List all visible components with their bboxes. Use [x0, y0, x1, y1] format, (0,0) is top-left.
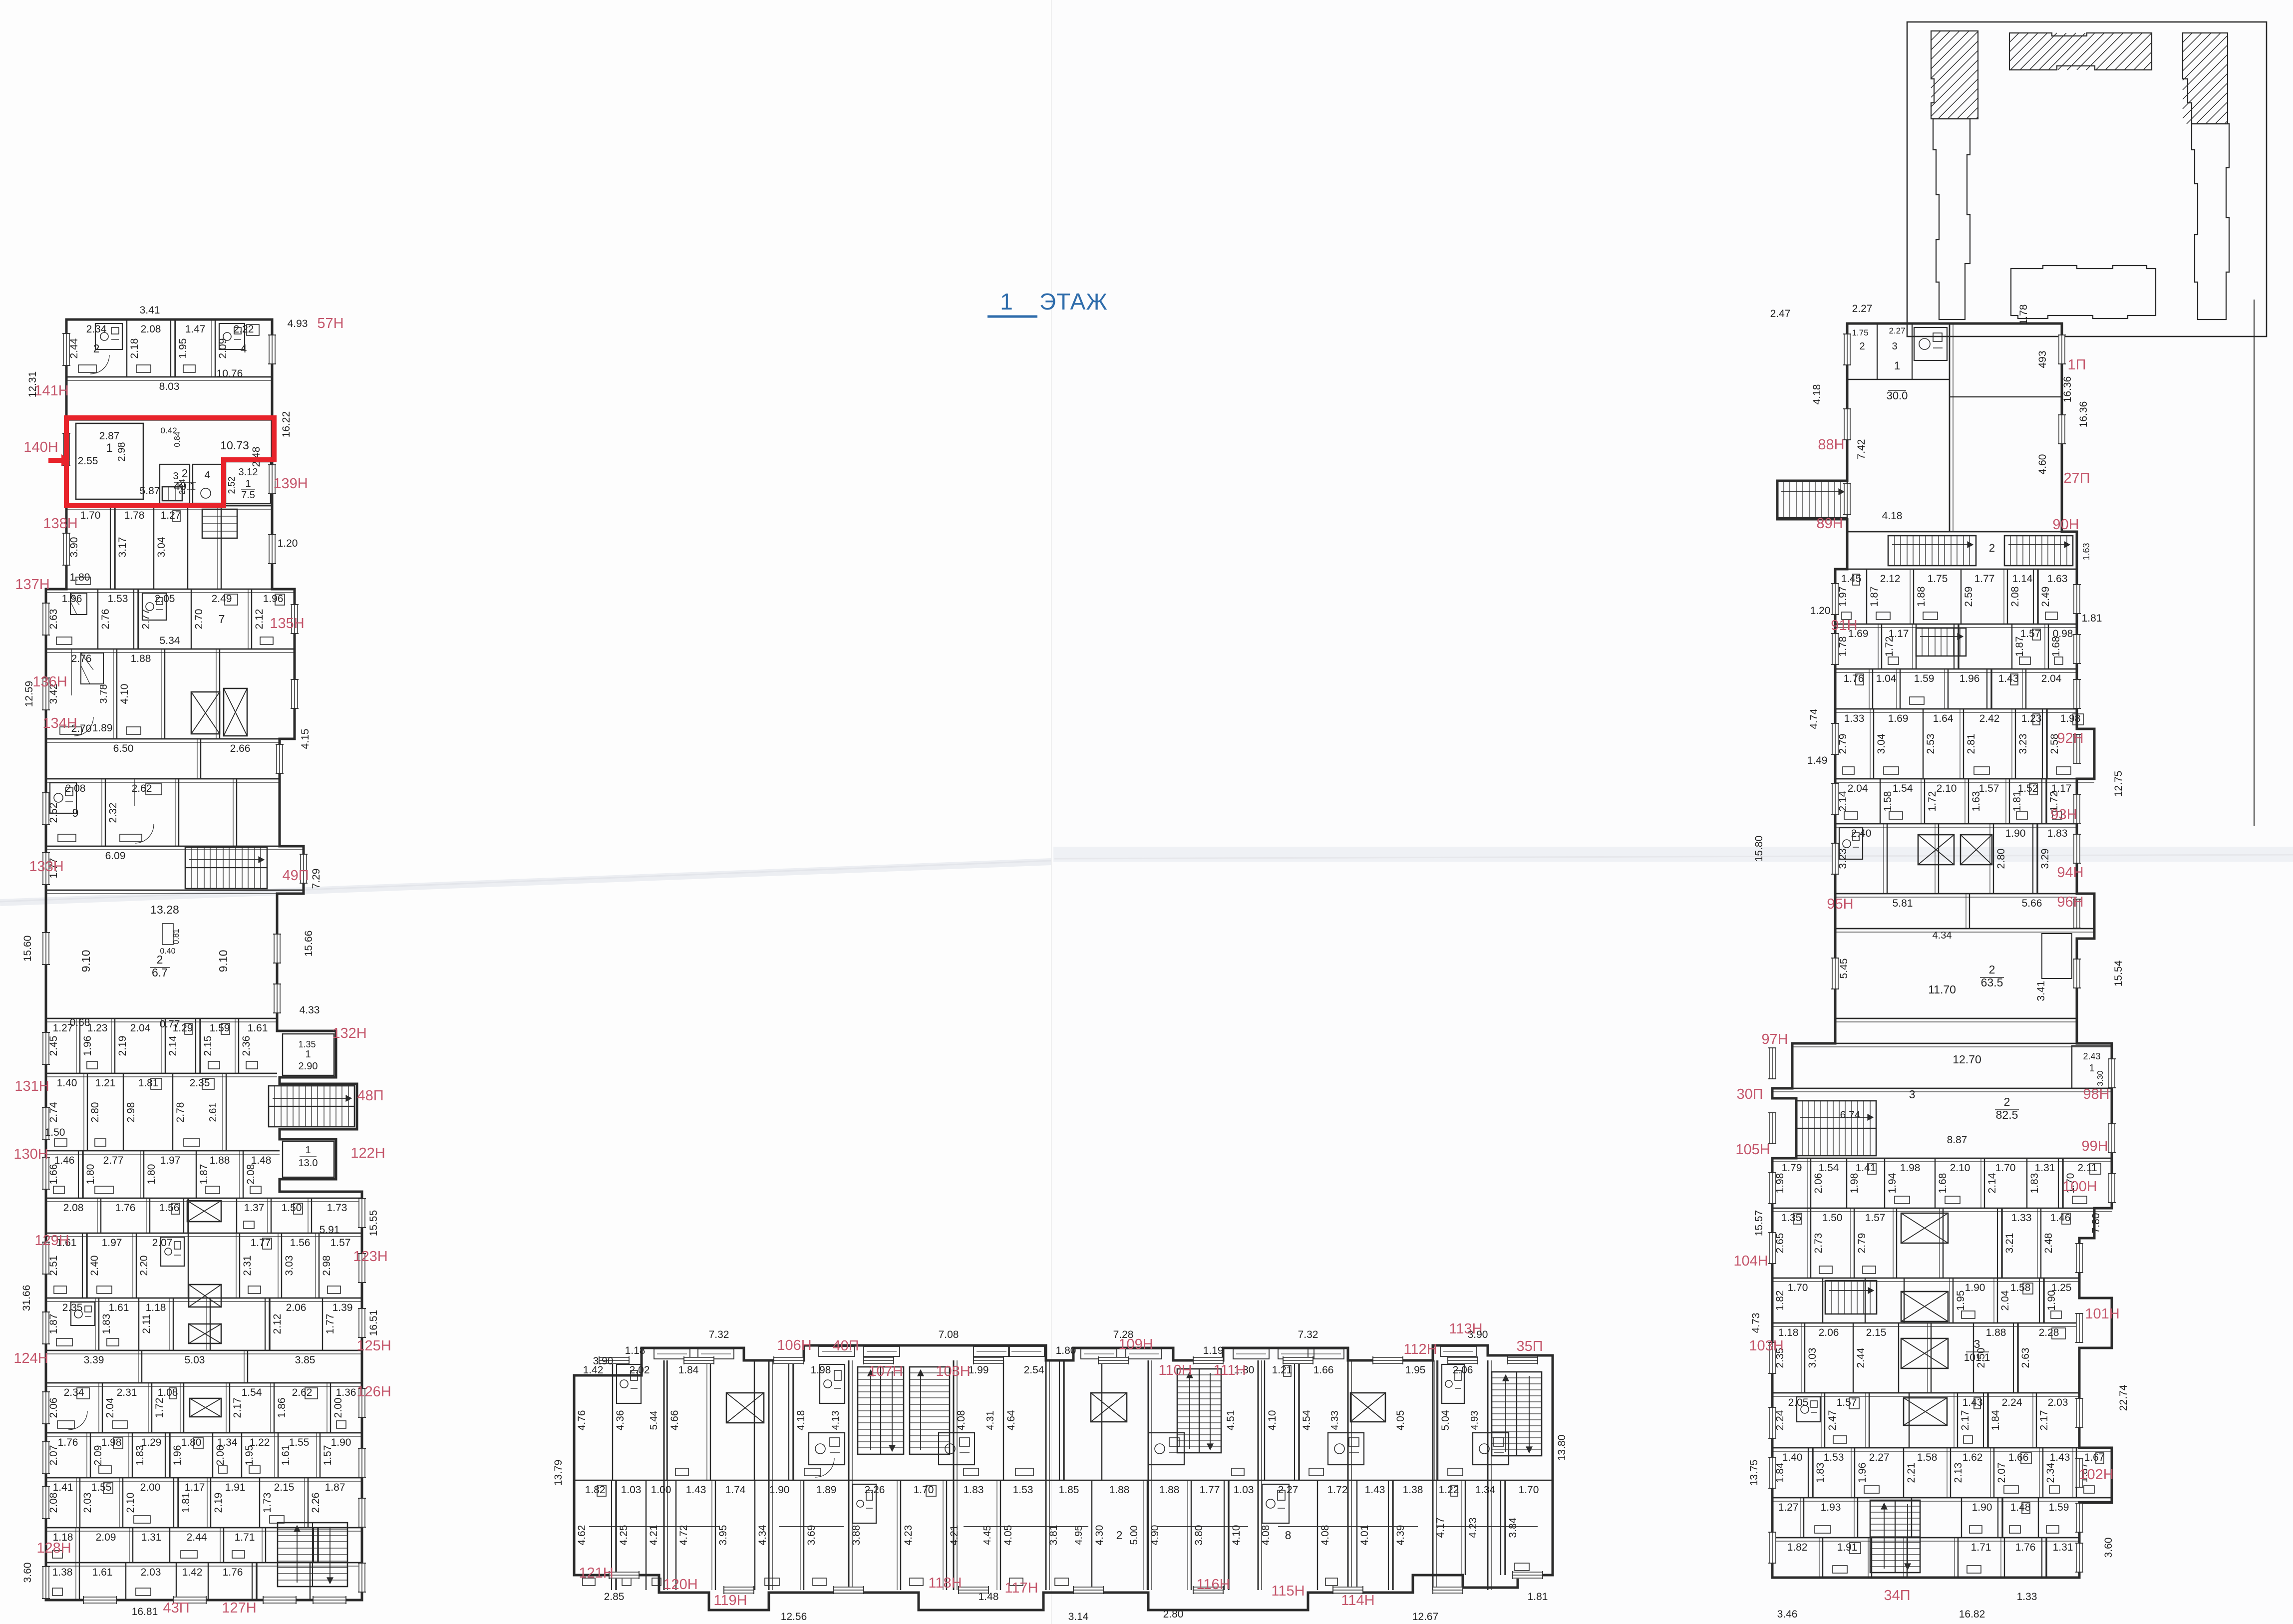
svg-text:1.98: 1.98 [101, 1437, 122, 1448]
svg-text:1.56: 1.56 [290, 1237, 311, 1249]
svg-text:1.86: 1.86 [276, 1398, 288, 1418]
svg-text:92Н: 92Н [2057, 730, 2083, 746]
svg-text:3.90: 3.90 [1468, 1329, 1488, 1340]
svg-text:2.44: 2.44 [1855, 1347, 1867, 1368]
svg-text:3: 3 [1974, 1337, 1980, 1350]
svg-text:1.20: 1.20 [278, 538, 298, 549]
svg-text:2: 2 [1859, 341, 1865, 352]
svg-text:1.81: 1.81 [1528, 1591, 1548, 1603]
svg-text:1.64: 1.64 [1933, 713, 1954, 724]
svg-text:101Н: 101Н [2085, 1306, 2119, 1322]
svg-text:2.76: 2.76 [100, 609, 111, 630]
svg-text:4.23: 4.23 [1467, 1518, 1479, 1538]
svg-text:137Н: 137Н [15, 577, 49, 593]
svg-text:27П: 27П [2063, 470, 2090, 486]
svg-text:2.06: 2.06 [215, 1445, 226, 1466]
svg-text:94Н: 94Н [2057, 865, 2083, 881]
svg-text:1.56: 1.56 [159, 1202, 180, 1214]
svg-text:48П: 48П [357, 1088, 383, 1104]
svg-text:4.34: 4.34 [1933, 930, 1952, 941]
svg-text:2.77: 2.77 [103, 1155, 124, 1166]
svg-text:2.48: 2.48 [2043, 1233, 2054, 1254]
svg-text:1.74: 1.74 [725, 1484, 746, 1496]
svg-text:1.70: 1.70 [1788, 1282, 1808, 1294]
svg-text:3.23: 3.23 [2017, 734, 2029, 754]
svg-text:2.73: 2.73 [1813, 1233, 1824, 1254]
svg-text:9.10: 9.10 [217, 950, 230, 973]
svg-text:1.82: 1.82 [1787, 1542, 1808, 1553]
svg-text:15.57: 15.57 [1753, 1210, 1765, 1237]
svg-text:2.65: 2.65 [1774, 1233, 1786, 1254]
svg-text:3.90: 3.90 [593, 1355, 614, 1367]
svg-text:2.35: 2.35 [62, 1302, 83, 1313]
svg-text:3.29: 3.29 [2039, 849, 2051, 869]
svg-text:1.35: 1.35 [1781, 1212, 1802, 1224]
svg-text:7: 7 [219, 613, 225, 626]
svg-text:4.10: 4.10 [1231, 1525, 1242, 1546]
svg-text:1.88: 1.88 [1916, 587, 1927, 607]
svg-text:1.50: 1.50 [1822, 1212, 1843, 1224]
svg-text:107Н: 107Н [868, 1363, 903, 1379]
svg-text:122Н: 122Н [350, 1145, 385, 1161]
svg-text:1.96: 1.96 [263, 593, 284, 605]
svg-text:3.88: 3.88 [851, 1525, 862, 1546]
svg-text:2.98: 2.98 [116, 442, 127, 462]
svg-text:4.73: 4.73 [1750, 1313, 1762, 1333]
svg-text:35П: 35П [1516, 1338, 1543, 1354]
svg-text:12.67: 12.67 [1412, 1611, 1439, 1623]
svg-text:1.31: 1.31 [2035, 1162, 2055, 1174]
svg-text:1.23: 1.23 [2021, 713, 2042, 724]
svg-text:116Н: 116Н [1196, 1577, 1230, 1593]
svg-text:1.63: 1.63 [2047, 573, 2068, 585]
svg-text:112Н: 112Н [1403, 1341, 1437, 1357]
svg-text:7.29: 7.29 [311, 869, 322, 889]
svg-text:12.70: 12.70 [1953, 1053, 1981, 1066]
svg-text:1.85: 1.85 [1059, 1484, 1079, 1496]
svg-text:2.00: 2.00 [332, 1398, 344, 1418]
svg-text:1.59: 1.59 [210, 1022, 230, 1034]
svg-text:43П: 43П [163, 1600, 189, 1616]
svg-text:1.76: 1.76 [2015, 1542, 2036, 1553]
svg-text:5.34: 5.34 [160, 635, 180, 647]
svg-text:3.41: 3.41 [2035, 981, 2047, 1001]
svg-text:2.47: 2.47 [1770, 308, 1791, 320]
svg-text:1.61: 1.61 [248, 1022, 268, 1034]
svg-text:15.54: 15.54 [2113, 960, 2124, 986]
svg-text:30П: 30П [1736, 1086, 1763, 1102]
svg-text:2.07: 2.07 [48, 1445, 59, 1466]
svg-text:1.88: 1.88 [210, 1155, 230, 1166]
svg-text:115Н: 115Н [1271, 1583, 1305, 1599]
svg-text:2.62: 2.62 [132, 783, 152, 794]
svg-text:89Н: 89Н [1816, 516, 1843, 532]
svg-text:1.31: 1.31 [141, 1532, 162, 1543]
svg-text:4.05: 4.05 [1002, 1525, 1014, 1546]
svg-text:2.31: 2.31 [242, 1256, 253, 1276]
svg-text:12.31: 12.31 [27, 371, 38, 398]
svg-text:4.76: 4.76 [576, 1410, 588, 1431]
svg-text:100Н: 100Н [2062, 1179, 2097, 1195]
svg-text:13.28: 13.28 [150, 903, 179, 916]
svg-text:1.03: 1.03 [1234, 1484, 1254, 1496]
svg-text:119Н: 119Н [713, 1593, 747, 1609]
svg-text:0.68: 0.68 [70, 1017, 90, 1028]
svg-text:1.33: 1.33 [1844, 713, 1865, 724]
svg-text:1.18: 1.18 [625, 1345, 646, 1356]
svg-text:3.12: 3.12 [239, 467, 258, 478]
svg-text:138Н: 138Н [43, 516, 77, 532]
svg-text:120Н: 120Н [663, 1577, 697, 1593]
svg-text:3.14: 3.14 [1068, 1611, 1089, 1623]
svg-text:3.46: 3.46 [1777, 1609, 1798, 1620]
svg-text:96Н: 96Н [2057, 894, 2083, 910]
svg-text:2.10: 2.10 [1937, 783, 1957, 794]
svg-text:1.81: 1.81 [2082, 613, 2102, 624]
svg-text:1.97: 1.97 [160, 1155, 181, 1166]
svg-text:2.98: 2.98 [321, 1256, 332, 1276]
svg-text:123Н: 123Н [353, 1249, 387, 1265]
svg-text:2.90: 2.90 [299, 1061, 318, 1072]
svg-text:3.85: 3.85 [295, 1354, 316, 1366]
svg-text:1.75: 1.75 [1852, 328, 1868, 337]
svg-text:95Н: 95Н [1827, 896, 1853, 912]
svg-text:1.54: 1.54 [1893, 783, 1913, 794]
svg-text:1.82: 1.82 [1774, 1291, 1786, 1311]
svg-text:1.87: 1.87 [2014, 637, 2025, 657]
svg-text:4.21: 4.21 [648, 1525, 659, 1546]
svg-text:1.96: 1.96 [82, 1036, 93, 1056]
svg-text:2.06: 2.06 [48, 1398, 59, 1418]
svg-text:4: 4 [204, 470, 210, 481]
svg-text:3: 3 [173, 471, 178, 482]
svg-text:2.27: 2.27 [1852, 303, 1873, 315]
svg-text:2.79: 2.79 [1856, 1233, 1868, 1254]
svg-text:132Н: 132Н [332, 1025, 366, 1041]
svg-text:4.18: 4.18 [1811, 384, 1823, 405]
svg-text:2.80: 2.80 [89, 1102, 101, 1123]
svg-text:1.83: 1.83 [101, 1314, 112, 1334]
svg-text:2.61: 2.61 [208, 1103, 219, 1122]
svg-text:2.15: 2.15 [202, 1036, 214, 1056]
svg-text:2.05: 2.05 [155, 593, 175, 605]
svg-text:1.38: 1.38 [52, 1567, 73, 1578]
svg-text:2.48: 2.48 [251, 447, 262, 467]
svg-text:1.72: 1.72 [1327, 1484, 1348, 1496]
svg-text:16.82: 16.82 [1959, 1609, 1985, 1620]
svg-text:2.79: 2.79 [1837, 734, 1849, 754]
svg-text:2.66: 2.66 [230, 743, 251, 754]
svg-text:2.24: 2.24 [178, 479, 187, 494]
svg-text:1.71: 1.71 [1971, 1542, 1991, 1553]
svg-text:1.87: 1.87 [198, 1164, 210, 1185]
svg-text:4.17: 4.17 [1435, 1518, 1446, 1538]
svg-text:1.96: 1.96 [1857, 1463, 1868, 1483]
svg-text:2.27: 2.27 [1889, 326, 1905, 335]
svg-text:1.31: 1.31 [2053, 1542, 2073, 1553]
svg-text:4.30: 4.30 [1094, 1525, 1105, 1546]
svg-text:49П: 49П [282, 868, 309, 884]
svg-text:2: 2 [93, 342, 100, 355]
svg-text:1.63: 1.63 [1970, 791, 1982, 812]
svg-text:5.66: 5.66 [2022, 898, 2042, 909]
svg-text:1: 1 [2089, 1063, 2094, 1074]
svg-text:93Н: 93Н [2050, 807, 2077, 823]
svg-text:2.14: 2.14 [167, 1035, 179, 1056]
svg-text:3.04: 3.04 [1876, 733, 1887, 754]
svg-text:136Н: 136Н [32, 674, 67, 690]
svg-text:ЭТАЖ: ЭТАЖ [1039, 289, 1108, 315]
svg-text:1.58: 1.58 [1917, 1452, 1938, 1463]
svg-text:2.32: 2.32 [107, 803, 119, 823]
svg-text:2.10: 2.10 [125, 1493, 136, 1513]
svg-text:4.62: 4.62 [576, 1525, 588, 1546]
svg-text:1.33: 1.33 [2011, 1212, 2032, 1224]
svg-text:10.76: 10.76 [217, 368, 243, 379]
svg-text:1.22: 1.22 [1439, 1484, 1459, 1496]
svg-text:2.78: 2.78 [175, 1102, 186, 1123]
svg-text:2: 2 [182, 467, 188, 480]
svg-text:4.08: 4.08 [1260, 1525, 1272, 1546]
svg-text:1.62: 1.62 [1963, 1452, 1983, 1463]
svg-text:1.68: 1.68 [2050, 637, 2062, 657]
svg-text:2.44: 2.44 [187, 1532, 207, 1543]
svg-text:7.5: 7.5 [241, 490, 255, 501]
svg-text:1: 1 [106, 441, 112, 455]
svg-text:1.89: 1.89 [92, 722, 113, 734]
svg-text:1.98: 1.98 [2060, 713, 2081, 724]
svg-text:4.25: 4.25 [618, 1525, 630, 1546]
svg-text:1.96: 1.96 [1960, 673, 1980, 684]
svg-text:0.84: 0.84 [173, 431, 182, 447]
svg-text:1.71: 1.71 [235, 1532, 255, 1543]
svg-text:4.33: 4.33 [300, 1004, 320, 1016]
svg-text:130Н: 130Н [13, 1146, 48, 1162]
svg-text:1.98: 1.98 [811, 1364, 831, 1376]
svg-text:2.19: 2.19 [213, 1493, 224, 1513]
svg-text:2.06: 2.06 [286, 1302, 307, 1313]
svg-text:134Н: 134Н [42, 715, 77, 731]
svg-text:1.34: 1.34 [1475, 1484, 1496, 1496]
svg-text:1.41: 1.41 [1856, 1162, 1876, 1174]
svg-text:118Н: 118Н [928, 1575, 962, 1591]
svg-text:1.79: 1.79 [1782, 1162, 1802, 1174]
svg-text:2.51: 2.51 [48, 1256, 59, 1276]
svg-text:2.06: 2.06 [1813, 1173, 1824, 1194]
svg-text:1.98: 1.98 [1900, 1162, 1921, 1174]
svg-text:2.12: 2.12 [254, 609, 265, 630]
svg-text:1.77: 1.77 [1974, 573, 1995, 585]
svg-text:4.95: 4.95 [1073, 1526, 1084, 1545]
svg-text:106Н: 106Н [777, 1337, 811, 1353]
svg-text:126Н: 126Н [356, 1384, 391, 1400]
svg-text:1.54: 1.54 [242, 1387, 262, 1398]
svg-text:3.04: 3.04 [156, 537, 167, 557]
svg-text:1.90: 1.90 [331, 1437, 351, 1448]
svg-text:2.20: 2.20 [138, 1256, 150, 1276]
svg-text:2.03: 2.03 [141, 1567, 161, 1578]
svg-text:1.81: 1.81 [138, 1077, 159, 1089]
svg-text:1.53: 1.53 [108, 593, 128, 605]
svg-text:1.76: 1.76 [1844, 673, 1864, 684]
svg-text:1.03: 1.03 [621, 1484, 642, 1496]
svg-text:8: 8 [1285, 1529, 1292, 1542]
svg-text:2.80: 2.80 [1995, 849, 2007, 869]
svg-text:4.60: 4.60 [2037, 454, 2048, 475]
svg-text:1.38: 1.38 [1403, 1484, 1423, 1496]
svg-text:2.08: 2.08 [65, 783, 86, 794]
svg-text:2.18: 2.18 [129, 338, 140, 359]
svg-text:4.31: 4.31 [985, 1411, 996, 1430]
svg-text:4.33: 4.33 [1329, 1411, 1340, 1430]
svg-text:1.95: 1.95 [1405, 1364, 1426, 1376]
svg-text:1.98: 1.98 [1849, 1173, 1860, 1194]
svg-text:2.40: 2.40 [1851, 828, 1872, 839]
svg-text:1.87: 1.87 [48, 1314, 59, 1334]
svg-text:1.80: 1.80 [146, 1164, 157, 1185]
svg-text:3.39: 3.39 [84, 1354, 104, 1366]
svg-text:7.08: 7.08 [939, 1329, 959, 1340]
svg-text:3.60: 3.60 [2103, 1538, 2114, 1558]
svg-text:1.83: 1.83 [134, 1445, 146, 1466]
svg-text:493: 493 [2037, 350, 2048, 368]
svg-text:2.55: 2.55 [78, 455, 98, 467]
svg-text:4.18: 4.18 [1882, 510, 1903, 522]
svg-text:91Н: 91Н [1831, 618, 1857, 634]
svg-text:2.53: 2.53 [1925, 734, 1937, 754]
svg-text:2.10: 2.10 [1950, 1162, 1970, 1174]
svg-text:2.13: 2.13 [1953, 1463, 1964, 1483]
svg-text:4.66: 4.66 [669, 1410, 680, 1431]
svg-text:99Н: 99Н [2081, 1138, 2108, 1154]
svg-text:2.04: 2.04 [1999, 1290, 2011, 1310]
svg-text:1.66: 1.66 [1313, 1364, 1334, 1376]
svg-text:1.48: 1.48 [979, 1591, 999, 1603]
svg-text:2.05: 2.05 [1788, 1397, 1809, 1408]
svg-text:121Н: 121Н [579, 1565, 613, 1581]
svg-text:131Н: 131Н [14, 1078, 49, 1094]
svg-text:3.84: 3.84 [1507, 1517, 1519, 1538]
svg-text:8.87: 8.87 [1947, 1134, 1967, 1146]
svg-text:1.58: 1.58 [1882, 791, 1894, 812]
svg-text:1.70: 1.70 [914, 1484, 934, 1496]
svg-text:2.34: 2.34 [86, 324, 107, 335]
svg-text:15.80: 15.80 [1753, 836, 1765, 862]
svg-text:1.48: 1.48 [2010, 1502, 2031, 1513]
svg-text:1.58: 1.58 [2010, 1282, 2031, 1294]
svg-text:2.49: 2.49 [212, 593, 232, 605]
svg-text:1.17: 1.17 [185, 1482, 205, 1493]
svg-text:110Н: 110Н [1158, 1362, 1192, 1378]
svg-text:90Н: 90Н [2052, 517, 2079, 533]
svg-text:1.40: 1.40 [1782, 1452, 1803, 1463]
svg-text:2.08: 2.08 [245, 1164, 257, 1185]
svg-text:1.69: 1.69 [1888, 713, 1909, 724]
svg-text:2.59: 2.59 [1963, 587, 1974, 607]
svg-text:140Н: 140Н [23, 439, 58, 455]
svg-text:16.36: 16.36 [2078, 401, 2089, 428]
svg-text:2.00: 2.00 [140, 1482, 161, 1493]
svg-text:2.24: 2.24 [1774, 1410, 1786, 1430]
svg-text:1.14: 1.14 [2012, 573, 2033, 585]
svg-text:1.61: 1.61 [92, 1567, 113, 1578]
svg-text:31.66: 31.66 [21, 1285, 32, 1311]
svg-text:2.08: 2.08 [141, 324, 161, 335]
svg-text:1.96: 1.96 [172, 1445, 183, 1466]
svg-text:2.15: 2.15 [274, 1482, 295, 1493]
svg-text:2.27: 2.27 [1869, 1452, 1890, 1463]
svg-text:1.47: 1.47 [185, 324, 206, 335]
svg-text:1.87: 1.87 [325, 1482, 345, 1493]
svg-text:3.60: 3.60 [22, 1563, 33, 1583]
svg-text:1.77: 1.77 [325, 1314, 336, 1334]
svg-text:4.64: 4.64 [1005, 1410, 1017, 1430]
svg-text:128Н: 128Н [36, 1540, 71, 1556]
svg-text:2.08: 2.08 [48, 1493, 59, 1513]
svg-text:16.22: 16.22 [281, 411, 292, 438]
svg-text:1.41: 1.41 [53, 1482, 73, 1493]
svg-text:1.42: 1.42 [182, 1567, 203, 1578]
svg-text:1.50: 1.50 [282, 1202, 302, 1214]
svg-text:4.15: 4.15 [300, 729, 311, 749]
svg-text:2.98: 2.98 [125, 1102, 137, 1123]
svg-text:1.97: 1.97 [1837, 587, 1849, 607]
svg-text:1.88: 1.88 [1159, 1484, 1180, 1496]
svg-text:1.76: 1.76 [115, 1202, 136, 1214]
svg-text:2.07: 2.07 [152, 1237, 173, 1249]
svg-text:2.28: 2.28 [2039, 1327, 2059, 1338]
svg-text:1.49: 1.49 [1807, 755, 1828, 766]
svg-text:5.00: 5.00 [1129, 1526, 1140, 1545]
svg-text:1.81: 1.81 [2011, 791, 2023, 812]
svg-text:2.14: 2.14 [1986, 1173, 1998, 1193]
svg-text:1: 1 [1000, 289, 1013, 315]
svg-text:1.53: 1.53 [1013, 1484, 1033, 1496]
svg-text:1.98: 1.98 [1774, 1173, 1786, 1194]
svg-text:2.80: 2.80 [1163, 1609, 1184, 1620]
svg-text:1.54: 1.54 [1819, 1162, 1839, 1174]
svg-text:1.08: 1.08 [158, 1387, 178, 1398]
svg-text:1.78: 1.78 [1837, 637, 1849, 657]
svg-text:3.03: 3.03 [284, 1256, 295, 1276]
svg-text:22.74: 22.74 [2118, 1384, 2129, 1411]
svg-text:1.95: 1.95 [244, 1445, 255, 1466]
svg-text:15.66: 15.66 [303, 931, 315, 957]
svg-text:2.04: 2.04 [130, 1022, 151, 1034]
svg-text:2.04: 2.04 [1848, 783, 1868, 794]
svg-text:4.18: 4.18 [795, 1410, 807, 1431]
svg-text:13.75: 13.75 [1748, 1460, 1760, 1486]
svg-text:2.24: 2.24 [2002, 1397, 2022, 1408]
svg-text:2.26: 2.26 [310, 1493, 322, 1513]
svg-text:15.60: 15.60 [22, 936, 33, 962]
svg-text:2.35: 2.35 [190, 1077, 210, 1089]
svg-text:7.42: 7.42 [1856, 439, 1867, 460]
svg-text:97Н: 97Н [1761, 1031, 1788, 1047]
svg-text:2.85: 2.85 [604, 1591, 625, 1603]
svg-text:30.0: 30.0 [1887, 389, 1908, 402]
svg-text:5.91: 5.91 [320, 1224, 340, 1236]
svg-text:4.74: 4.74 [1808, 708, 1820, 729]
svg-text:3.78: 3.78 [98, 684, 109, 704]
svg-text:1.89: 1.89 [816, 1484, 837, 1496]
svg-text:3.90: 3.90 [68, 537, 80, 558]
svg-text:2.17: 2.17 [232, 1398, 243, 1418]
svg-text:4.13: 4.13 [830, 1411, 841, 1430]
svg-text:5.45: 5.45 [1838, 959, 1850, 979]
svg-text:1.43: 1.43 [686, 1484, 706, 1496]
svg-text:2.17: 2.17 [2038, 1410, 2050, 1431]
